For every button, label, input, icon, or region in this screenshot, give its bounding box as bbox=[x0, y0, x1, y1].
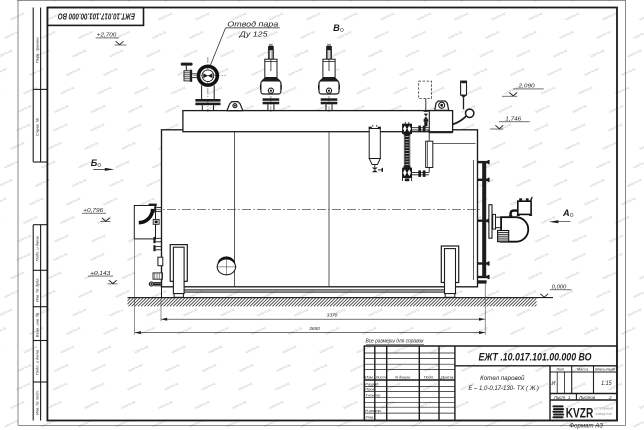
svg-text:kotel-kv.kz: kotel-kv.kz bbox=[473, 67, 489, 77]
svg-text:kotel-kv.kz: kotel-kv.kz bbox=[553, 48, 569, 58]
svg-text:kotel-kv.kz: kotel-kv.kz bbox=[590, 48, 606, 58]
svg-text:kotel-kv.kz: kotel-kv.kz bbox=[380, 11, 396, 21]
svg-text:kotel-kv.kz: kotel-kv.kz bbox=[627, 48, 643, 58]
svg-text:И: И bbox=[551, 381, 555, 387]
svg-text:Т.контр.: Т.контр. bbox=[365, 392, 381, 397]
svg-text:kotel-kv.kz: kotel-kv.kz bbox=[140, 326, 156, 336]
svg-text:kotel-kv.kz: kotel-kv.kz bbox=[602, 141, 618, 151]
svg-text:kotel-kv.kz: kotel-kv.kz bbox=[516, 307, 532, 317]
svg-text:kotel-kv.kz: kotel-kv.kz bbox=[220, 48, 236, 58]
svg-text:kotel-kv.kz: kotel-kv.kz bbox=[288, 326, 304, 336]
svg-text:kotel-kv.kz: kotel-kv.kz bbox=[571, 381, 587, 391]
svg-text:kotel-kv.kz: kotel-kv.kz bbox=[0, 196, 8, 206]
svg-text:kotel-kv.kz: kotel-kv.kz bbox=[547, 326, 563, 336]
svg-text:kotel-kv.kz: kotel-kv.kz bbox=[516, 48, 532, 58]
svg-text:kotel-kv.kz: kotel-kv.kz bbox=[436, 326, 452, 336]
svg-text:kotel-kv.kz: kotel-kv.kz bbox=[485, 159, 501, 169]
svg-text:kotel-kv.kz: kotel-kv.kz bbox=[399, 67, 415, 77]
svg-text:kotel-kv.kz: kotel-kv.kz bbox=[146, 307, 162, 317]
svg-text:kotel-kv.kz: kotel-kv.kz bbox=[66, 196, 82, 206]
svg-text:kotel-kv.kz: kotel-kv.kz bbox=[559, 30, 575, 40]
svg-text:kotel-kv.kz: kotel-kv.kz bbox=[0, 307, 14, 317]
svg-text:kotel-kv.kz: kotel-kv.kz bbox=[454, 11, 470, 21]
svg-text:kotel-kv.kz: kotel-kv.kz bbox=[0, 48, 14, 58]
svg-text:kotel-kv.kz: kotel-kv.kz bbox=[53, 122, 69, 132]
svg-text:kotel-kv.kz: kotel-kv.kz bbox=[467, 85, 483, 95]
svg-text:kotel-kv.kz: kotel-kv.kz bbox=[578, 85, 594, 95]
svg-text:kotel-kv.kz: kotel-kv.kz bbox=[498, 363, 514, 373]
svg-text:kotel-kv.kz: kotel-kv.kz bbox=[319, 344, 335, 354]
svg-text:kotel-kv.kz: kotel-kv.kz bbox=[245, 85, 261, 95]
svg-text:kotel-kv.kz: kotel-kv.kz bbox=[596, 30, 612, 40]
svg-text:kotel-kv.kz: kotel-kv.kz bbox=[497, 122, 513, 132]
svg-text:kotel-kv.kz: kotel-kv.kz bbox=[343, 11, 359, 21]
svg-text:kotel-kv.kz: kotel-kv.kz bbox=[257, 307, 273, 317]
svg-text:kotel-kv.kz: kotel-kv.kz bbox=[115, 30, 131, 40]
svg-text:kotel-kv.kz: kotel-kv.kz bbox=[584, 67, 600, 77]
svg-text:kotel-kv.kz: kotel-kv.kz bbox=[479, 48, 495, 58]
svg-text:Утв.: Утв. bbox=[365, 415, 374, 420]
svg-text:Пров.: Пров. bbox=[365, 387, 375, 392]
svg-text:kotel-kv.kz: kotel-kv.kz bbox=[60, 344, 76, 354]
svg-text:А: А bbox=[562, 208, 570, 218]
svg-text:kotel-kv.kz: kotel-kv.kz bbox=[442, 307, 458, 317]
svg-text:N докум.: N докум. bbox=[395, 375, 411, 380]
svg-text:kotel-kv.kz: kotel-kv.kz bbox=[331, 48, 347, 58]
svg-text:kotel-kv.kz: kotel-kv.kz bbox=[534, 252, 550, 262]
svg-text:kotel-kv.kz: kotel-kv.kz bbox=[590, 178, 606, 188]
svg-text:Масштаб: Масштаб bbox=[595, 368, 616, 372]
svg-text:kotel-kv.kz: kotel-kv.kz bbox=[134, 85, 150, 95]
svg-text:kotel-kv.kz: kotel-kv.kz bbox=[177, 326, 193, 336]
svg-text:kotel-kv.kz: kotel-kv.kz bbox=[47, 270, 63, 280]
svg-text:1:15: 1:15 bbox=[601, 380, 612, 387]
svg-text:kotel-kv.kz: kotel-kv.kz bbox=[504, 85, 520, 95]
svg-text:Разраб.: Разраб. bbox=[365, 381, 379, 386]
svg-text:kotel-kv.kz: kotel-kv.kz bbox=[115, 159, 131, 169]
svg-text:kotel-kv.kz: kotel-kv.kz bbox=[572, 104, 588, 114]
svg-text:kotel-kv.kz: kotel-kv.kz bbox=[4, 289, 20, 299]
svg-text:kotel-kv.kz: kotel-kv.kz bbox=[195, 11, 211, 21]
svg-text:kotel-kv.kz: kotel-kv.kz bbox=[535, 363, 551, 373]
svg-text:kotel-kv.kz: kotel-kv.kz bbox=[66, 67, 82, 77]
svg-text:kotel-kv.kz: kotel-kv.kz bbox=[183, 307, 199, 317]
svg-text:kotel-kv.kz: kotel-kv.kz bbox=[584, 196, 600, 206]
svg-text:kotel-kv.kz: kotel-kv.kz bbox=[134, 344, 150, 354]
svg-text:kotel-kv.kz: kotel-kv.kz bbox=[294, 307, 310, 317]
svg-text:kotel-kv.kz: kotel-kv.kz bbox=[0, 326, 8, 336]
svg-text:kotel-kv.kz: kotel-kv.kz bbox=[90, 122, 106, 132]
svg-text:kotel-kv.kz: kotel-kv.kz bbox=[232, 400, 248, 410]
svg-text:kotel-kv.kz: kotel-kv.kz bbox=[633, 159, 644, 169]
svg-text:kotel-kv.kz: kotel-kv.kz bbox=[565, 141, 581, 151]
svg-text:kotel-kv.kz: kotel-kv.kz bbox=[127, 381, 143, 391]
svg-text:Отвод пара: Отвод пара bbox=[227, 19, 278, 28]
svg-text:kotel-kv.kz: kotel-kv.kz bbox=[436, 67, 452, 77]
svg-text:kotel-kv.kz: kotel-kv.kz bbox=[294, 48, 310, 58]
svg-text:kotel-kv.kz: kotel-kv.kz bbox=[220, 307, 236, 317]
svg-text:kotel-kv.kz: kotel-kv.kz bbox=[325, 326, 341, 336]
svg-text:kotel-kv.kz: kotel-kv.kz bbox=[578, 215, 594, 225]
svg-text:Б: Б bbox=[91, 158, 98, 168]
svg-text:kotel-kv.kz: kotel-kv.kz bbox=[639, 141, 644, 151]
svg-text:Листов: Листов bbox=[578, 395, 596, 400]
svg-text:kotel-kv.kz: kotel-kv.kz bbox=[17, 104, 33, 114]
svg-text:kotel-kv.kz: kotel-kv.kz bbox=[553, 178, 569, 188]
svg-text:kotel-kv.kz: kotel-kv.kz bbox=[621, 196, 637, 206]
svg-text:kotel-kv.kz: kotel-kv.kz bbox=[53, 381, 69, 391]
svg-text:kotel-kv.kz: kotel-kv.kz bbox=[195, 400, 211, 410]
svg-text:kotel-kv.kz: kotel-kv.kz bbox=[121, 141, 137, 151]
svg-text:kotel-kv.kz: kotel-kv.kz bbox=[214, 326, 230, 336]
svg-text:kotel-kv.kz: kotel-kv.kz bbox=[17, 363, 33, 373]
svg-text:kotel-kv.kz: kotel-kv.kz bbox=[245, 344, 261, 354]
svg-text:kotel-kv.kz: kotel-kv.kz bbox=[571, 252, 587, 262]
svg-text:kotel-kv.kz: kotel-kv.kz bbox=[103, 326, 119, 336]
svg-text:kotel-kv.kz: kotel-kv.kz bbox=[146, 178, 162, 188]
svg-text:kotel-kv.kz: kotel-kv.kz bbox=[90, 381, 106, 391]
svg-text:kotel-kv.kz: kotel-kv.kz bbox=[127, 122, 143, 132]
svg-text:kotel-kv.kz: kotel-kv.kz bbox=[282, 344, 298, 354]
svg-text:Подп. и дата: Подп. и дата bbox=[34, 349, 39, 375]
svg-text:kotel-kv.kz: kotel-kv.kz bbox=[350, 363, 366, 373]
svg-text:Подп. и дата: Подп. и дата bbox=[34, 236, 39, 262]
svg-text:Инв. № подл.: Инв. № подл. bbox=[34, 390, 39, 415]
svg-text:kotel-kv.kz: kotel-kv.kz bbox=[442, 48, 458, 58]
svg-text:kotel-kv.kz: kotel-kv.kz bbox=[547, 67, 563, 77]
svg-text:kotel-kv.kz: kotel-kv.kz bbox=[23, 85, 39, 95]
svg-text:kotel-kv.kz: kotel-kv.kz bbox=[534, 122, 550, 132]
svg-text:kotel-kv.kz: kotel-kv.kz bbox=[497, 252, 513, 262]
svg-text:kotel-kv.kz: kotel-kv.kz bbox=[0, 85, 2, 95]
svg-text:kotel-kv.kz: kotel-kv.kz bbox=[584, 326, 600, 336]
svg-text:kotel-kv.kz: kotel-kv.kz bbox=[60, 215, 76, 225]
svg-text:В: В bbox=[333, 23, 340, 33]
svg-text:kotel-kv.kz: kotel-kv.kz bbox=[417, 11, 433, 21]
svg-text:kotel-kv.kz: kotel-kv.kz bbox=[158, 11, 174, 21]
svg-text:kotel-kv.kz: kotel-kv.kz bbox=[306, 11, 322, 21]
svg-text:kotel-kv.kz: kotel-kv.kz bbox=[269, 400, 285, 410]
svg-text:kotel-kv.kz: kotel-kv.kz bbox=[380, 400, 396, 410]
svg-text:kotel-kv.kz: kotel-kv.kz bbox=[473, 326, 489, 336]
svg-text:kotel-kv.kz: kotel-kv.kz bbox=[313, 363, 329, 373]
svg-text:kotel-kv.kz: kotel-kv.kz bbox=[202, 363, 218, 373]
svg-text:kotel-kv.kz: kotel-kv.kz bbox=[411, 30, 427, 40]
svg-text:kotel-kv.kz: kotel-kv.kz bbox=[84, 400, 100, 410]
svg-text:kotel-kv.kz: kotel-kv.kz bbox=[430, 85, 446, 95]
svg-text:kotel-kv.kz: kotel-kv.kz bbox=[164, 381, 180, 391]
svg-text:kotel-kv.kz: kotel-kv.kz bbox=[109, 178, 125, 188]
svg-text:kotel-kv.kz: kotel-kv.kz bbox=[590, 307, 606, 317]
svg-text:kotel-kv.kz: kotel-kv.kz bbox=[288, 67, 304, 77]
svg-text:kotel-kv.kz: kotel-kv.kz bbox=[78, 289, 94, 299]
svg-text:kotel-kv.kz: kotel-kv.kz bbox=[189, 30, 205, 40]
svg-text:kotel-kv.kz: kotel-kv.kz bbox=[72, 48, 88, 58]
svg-text:kotel-kv.kz: kotel-kv.kz bbox=[47, 400, 63, 410]
svg-text:Изм.: Изм. bbox=[365, 375, 374, 380]
svg-text:ЕЖТ .10.017.101.00.000 ВО: ЕЖТ .10.017.101.00.000 ВО bbox=[479, 351, 592, 363]
svg-text:Лит.: Лит. bbox=[555, 368, 565, 372]
svg-text:kotel-kv.kz: kotel-kv.kz bbox=[4, 159, 20, 169]
svg-text:kotel-kv.kz: kotel-kv.kz bbox=[608, 252, 624, 262]
svg-text:kotel-kv.kz: kotel-kv.kz bbox=[448, 30, 464, 40]
svg-text:Перв. примен.: Перв. примен. bbox=[34, 36, 39, 63]
svg-text:kotel-kv.kz: kotel-kv.kz bbox=[66, 326, 82, 336]
svg-text:KVZR: KVZR bbox=[566, 405, 594, 421]
svg-text:kotel-kv.kz: kotel-kv.kz bbox=[627, 307, 643, 317]
svg-text:kotel-kv.kz: kotel-kv.kz bbox=[627, 178, 643, 188]
svg-text:kotel-kv.kz: kotel-kv.kz bbox=[596, 289, 612, 299]
svg-text:Подп.: Подп. bbox=[424, 375, 434, 380]
svg-text:kotel-kv.kz: kotel-kv.kz bbox=[23, 215, 39, 225]
svg-text:kotel-kv.kz: kotel-kv.kz bbox=[208, 85, 224, 95]
svg-text:kotel-kv.kz: kotel-kv.kz bbox=[491, 400, 507, 410]
svg-text:Лист: Лист bbox=[553, 395, 566, 400]
svg-text:kotel-kv.kz: kotel-kv.kz bbox=[4, 418, 20, 428]
svg-text:kotel-kv.kz: kotel-kv.kz bbox=[602, 270, 618, 280]
svg-text:kotel-kv.kz: kotel-kv.kz bbox=[528, 141, 544, 151]
svg-text:kotel-kv.kz: kotel-kv.kz bbox=[53, 252, 69, 262]
svg-text:kotel-kv.kz: kotel-kv.kz bbox=[54, 363, 70, 373]
svg-text:kotel-kv.kz: kotel-kv.kz bbox=[158, 400, 174, 410]
svg-text:kotel-kv.kz: kotel-kv.kz bbox=[275, 381, 291, 391]
svg-text:kotel-kv.kz: kotel-kv.kz bbox=[239, 363, 255, 373]
svg-text:kotel-kv.kz: kotel-kv.kz bbox=[41, 289, 57, 299]
svg-text:kotel-kv.kz: kotel-kv.kz bbox=[343, 400, 359, 410]
svg-text:kotel-kv.kz: kotel-kv.kz bbox=[621, 67, 637, 77]
svg-text:kotel-kv.kz: kotel-kv.kz bbox=[201, 381, 217, 391]
svg-text:kotel-kv.kz: kotel-kv.kz bbox=[165, 104, 181, 114]
svg-text:kotel-kv.kz: kotel-kv.kz bbox=[72, 178, 88, 188]
svg-text:kotel-kv.kz: kotel-kv.kz bbox=[91, 104, 107, 114]
svg-text:kotel-kv.kz: kotel-kv.kz bbox=[565, 270, 581, 280]
svg-text:kotel-kv.kz: kotel-kv.kz bbox=[90, 252, 106, 262]
svg-text:kotel-kv.kz: kotel-kv.kz bbox=[109, 48, 125, 58]
svg-text:kotel-kv.kz: kotel-kv.kz bbox=[152, 30, 168, 40]
svg-text:kotel-kv.kz: kotel-kv.kz bbox=[103, 67, 119, 77]
svg-text:Ду 125: Ду 125 bbox=[238, 30, 268, 39]
svg-text:Инв. № дубл.: Инв. № дубл. bbox=[34, 277, 39, 302]
svg-text:kotel-kv.kz: kotel-kv.kz bbox=[165, 363, 181, 373]
svg-text:kotel-kv.kz: kotel-kv.kz bbox=[547, 196, 563, 206]
svg-text:kotel-kv.kz: kotel-kv.kz bbox=[602, 11, 618, 21]
svg-text:kotel-kv.kz: kotel-kv.kz bbox=[559, 159, 575, 169]
svg-text:kotel-kv.kz: kotel-kv.kz bbox=[393, 85, 409, 95]
svg-text:kotel-kv.kz: kotel-kv.kz bbox=[528, 11, 544, 21]
svg-text:kotel-kv.kz: kotel-kv.kz bbox=[498, 104, 514, 114]
svg-text:kotel-kv.kz: kotel-kv.kz bbox=[405, 307, 421, 317]
svg-text:kotel-kv.kz: kotel-kv.kz bbox=[84, 141, 100, 151]
svg-text:kotel-kv.kz: kotel-kv.kz bbox=[633, 418, 644, 428]
svg-text:kotel-kv.kz: kotel-kv.kz bbox=[0, 67, 8, 77]
svg-text:kotel-kv.kz: kotel-kv.kz bbox=[146, 48, 162, 58]
svg-text:kotel-kv.kz: kotel-kv.kz bbox=[91, 233, 107, 243]
svg-text:kotel-kv.kz: kotel-kv.kz bbox=[608, 122, 624, 132]
svg-text:ЕЖТ.10.017.101.00.000 ВО: ЕЖТ.10.017.101.00.000 ВО bbox=[58, 12, 135, 22]
svg-text:3370: 3370 bbox=[327, 313, 338, 319]
svg-text:kotel-kv.kz: kotel-kv.kz bbox=[374, 30, 390, 40]
svg-text:kotel-kv.kz: kotel-kv.kz bbox=[121, 270, 137, 280]
svg-text:kotel-kv.kz: kotel-kv.kz bbox=[535, 104, 551, 114]
svg-text:kotel-kv.kz: kotel-kv.kz bbox=[572, 233, 588, 243]
svg-text:Дата: Дата bbox=[439, 375, 454, 380]
svg-text:kotel-kv.kz: kotel-kv.kz bbox=[251, 67, 267, 77]
svg-text:kotel-kv.kz: kotel-kv.kz bbox=[41, 30, 57, 40]
svg-text:kotel-kv.kz: kotel-kv.kz bbox=[368, 307, 384, 317]
svg-text:+2,700: +2,700 bbox=[97, 32, 117, 38]
svg-text:Е – 1,0-0,17-130- ТХ ( Ж ): Е – 1,0-0,17-130- ТХ ( Ж ) bbox=[468, 386, 539, 392]
svg-text:kotel-kv.kz: kotel-kv.kz bbox=[29, 67, 45, 77]
svg-text:kotel-kv.kz: kotel-kv.kz bbox=[0, 344, 2, 354]
svg-text:Лист: Лист bbox=[375, 375, 387, 380]
svg-text:kotel-kv.kz: kotel-kv.kz bbox=[491, 270, 507, 280]
svg-text:kotel-kv.kz: kotel-kv.kz bbox=[17, 233, 33, 243]
svg-text:kotel-kv.kz: kotel-kv.kz bbox=[522, 159, 538, 169]
svg-text:kotel-kv.kz: kotel-kv.kz bbox=[571, 122, 587, 132]
svg-text:kotel-kv.kz: kotel-kv.kz bbox=[47, 141, 63, 151]
svg-text:kotel-kv.kz: kotel-kv.kz bbox=[312, 381, 328, 391]
svg-text:kotel-kv.kz: kotel-kv.kz bbox=[91, 363, 107, 373]
svg-text:kotel-kv.kz: kotel-kv.kz bbox=[208, 344, 224, 354]
svg-text:kotel-kv.kz: kotel-kv.kz bbox=[633, 30, 644, 40]
svg-text:kotel-kv.kz: kotel-kv.kz bbox=[565, 11, 581, 21]
svg-text:kotel-kv.kz: kotel-kv.kz bbox=[276, 363, 292, 373]
svg-text:kotel-kv.kz: kotel-kv.kz bbox=[300, 30, 316, 40]
svg-text:kotel-kv.kz: kotel-kv.kz bbox=[121, 400, 137, 410]
svg-text:kotel-kv.kz: kotel-kv.kz bbox=[485, 30, 501, 40]
svg-text:kotel-kv.kz: kotel-kv.kz bbox=[72, 307, 88, 317]
svg-text:kotel-kv.kz: kotel-kv.kz bbox=[183, 48, 199, 58]
svg-text:kotel-kv.kz: kotel-kv.kz bbox=[171, 344, 187, 354]
svg-text:kotel-kv.kz: kotel-kv.kz bbox=[362, 67, 378, 77]
svg-text:kotel-kv.kz: kotel-kv.kz bbox=[97, 344, 113, 354]
svg-text:kotel-kv.kz: kotel-kv.kz bbox=[528, 270, 544, 280]
svg-text:kotel-kv.kz: kotel-kv.kz bbox=[621, 326, 637, 336]
svg-text:kotel-kv.kz: kotel-kv.kz bbox=[54, 233, 70, 243]
svg-text:Справ. №: Справ. № bbox=[34, 117, 39, 136]
svg-text:kotel-kv.kz: kotel-kv.kz bbox=[78, 30, 94, 40]
svg-text:kotel-kv.kz: kotel-kv.kz bbox=[479, 307, 495, 317]
svg-text:Взам. инв. №: Взам. инв. № bbox=[34, 312, 39, 337]
svg-text:kotel-kv.kz: kotel-kv.kz bbox=[0, 178, 14, 188]
svg-text:kotel-kv.kz: kotel-kv.kz bbox=[510, 326, 526, 336]
svg-text:kotel-kv.kz: kotel-kv.kz bbox=[349, 381, 365, 391]
svg-text:kotel-kv.kz: kotel-kv.kz bbox=[399, 326, 415, 336]
svg-text:kotel-kv.kz: kotel-kv.kz bbox=[461, 363, 477, 373]
svg-text:Н.контр.: Н.контр. bbox=[365, 408, 381, 413]
svg-text:kotel-kv.kz: kotel-kv.kz bbox=[306, 400, 322, 410]
svg-text:2: 2 bbox=[608, 395, 612, 400]
svg-text:kotel-kv.kz: kotel-kv.kz bbox=[29, 196, 45, 206]
svg-text:kotel-kv.kz: kotel-kv.kz bbox=[596, 159, 612, 169]
svg-text:kotel-kv.kz: kotel-kv.kz bbox=[491, 11, 507, 21]
svg-text:kotel-kv.kz: kotel-kv.kz bbox=[368, 48, 384, 58]
svg-text:kotel-kv.kz: kotel-kv.kz bbox=[128, 363, 144, 373]
svg-text:kotel-kv.kz: kotel-kv.kz bbox=[60, 85, 76, 95]
svg-text:kotel-kv.kz: kotel-kv.kz bbox=[633, 289, 644, 299]
svg-text:kotel-kv.kz: kotel-kv.kz bbox=[128, 104, 144, 114]
svg-text:КОТЕЛЬНЫЙ: КОТЕЛЬНЫЙ bbox=[594, 407, 614, 411]
svg-text:kotel-kv.kz: kotel-kv.kz bbox=[516, 178, 532, 188]
svg-text:ЗАВОД РЗР: ЗАВОД РЗР bbox=[595, 412, 612, 416]
svg-text:kotel-kv.kz: kotel-kv.kz bbox=[282, 85, 298, 95]
svg-text:kotel-kv.kz: kotel-kv.kz bbox=[251, 326, 267, 336]
svg-text:kotel-kv.kz: kotel-kv.kz bbox=[97, 85, 113, 95]
svg-text:kotel-kv.kz: kotel-kv.kz bbox=[4, 30, 20, 40]
svg-text:kotel-kv.kz: kotel-kv.kz bbox=[0, 215, 2, 225]
svg-text:kotel-kv.kz: kotel-kv.kz bbox=[522, 30, 538, 40]
svg-text:kotel-kv.kz: kotel-kv.kz bbox=[405, 48, 421, 58]
svg-text:kotel-kv.kz: kotel-kv.kz bbox=[639, 270, 644, 280]
svg-text:kotel-kv.kz: kotel-kv.kz bbox=[140, 67, 156, 77]
svg-text:kotel-kv.kz: kotel-kv.kz bbox=[491, 141, 507, 151]
svg-text:Масса: Масса bbox=[577, 368, 588, 372]
svg-text:kotel-kv.kz: kotel-kv.kz bbox=[41, 159, 57, 169]
svg-text:kotel-kv.kz: kotel-kv.kz bbox=[103, 196, 119, 206]
svg-text:kotel-kv.kz: kotel-kv.kz bbox=[541, 85, 557, 95]
svg-text:kotel-kv.kz: kotel-kv.kz bbox=[528, 400, 544, 410]
svg-text:kotel-kv.kz: kotel-kv.kz bbox=[362, 326, 378, 336]
svg-text:Формат А3: Формат А3 bbox=[569, 422, 603, 429]
svg-text:kotel-kv.kz: kotel-kv.kz bbox=[238, 381, 254, 391]
svg-text:kotel-kv.kz: kotel-kv.kz bbox=[171, 85, 187, 95]
svg-text:1: 1 bbox=[568, 395, 571, 400]
svg-text:kotel-kv.kz: kotel-kv.kz bbox=[54, 104, 70, 114]
svg-text:kotel-kv.kz: kotel-kv.kz bbox=[535, 233, 551, 243]
svg-text:Котел паровой: Котел паровой bbox=[480, 375, 525, 382]
svg-text:kotel-kv.kz: kotel-kv.kz bbox=[639, 11, 644, 21]
svg-text:kotel-kv.kz: kotel-kv.kz bbox=[356, 85, 372, 95]
svg-text:3650: 3650 bbox=[309, 326, 320, 332]
svg-text:Все размеры для справок: Все размеры для справок bbox=[366, 339, 424, 345]
svg-text:kotel-kv.kz: kotel-kv.kz bbox=[510, 67, 526, 77]
svg-text:kotel-kv.kz: kotel-kv.kz bbox=[639, 400, 644, 410]
svg-text:kotel-kv.kz: kotel-kv.kz bbox=[454, 400, 470, 410]
svg-text:kotel-kv.kz: kotel-kv.kz bbox=[541, 215, 557, 225]
